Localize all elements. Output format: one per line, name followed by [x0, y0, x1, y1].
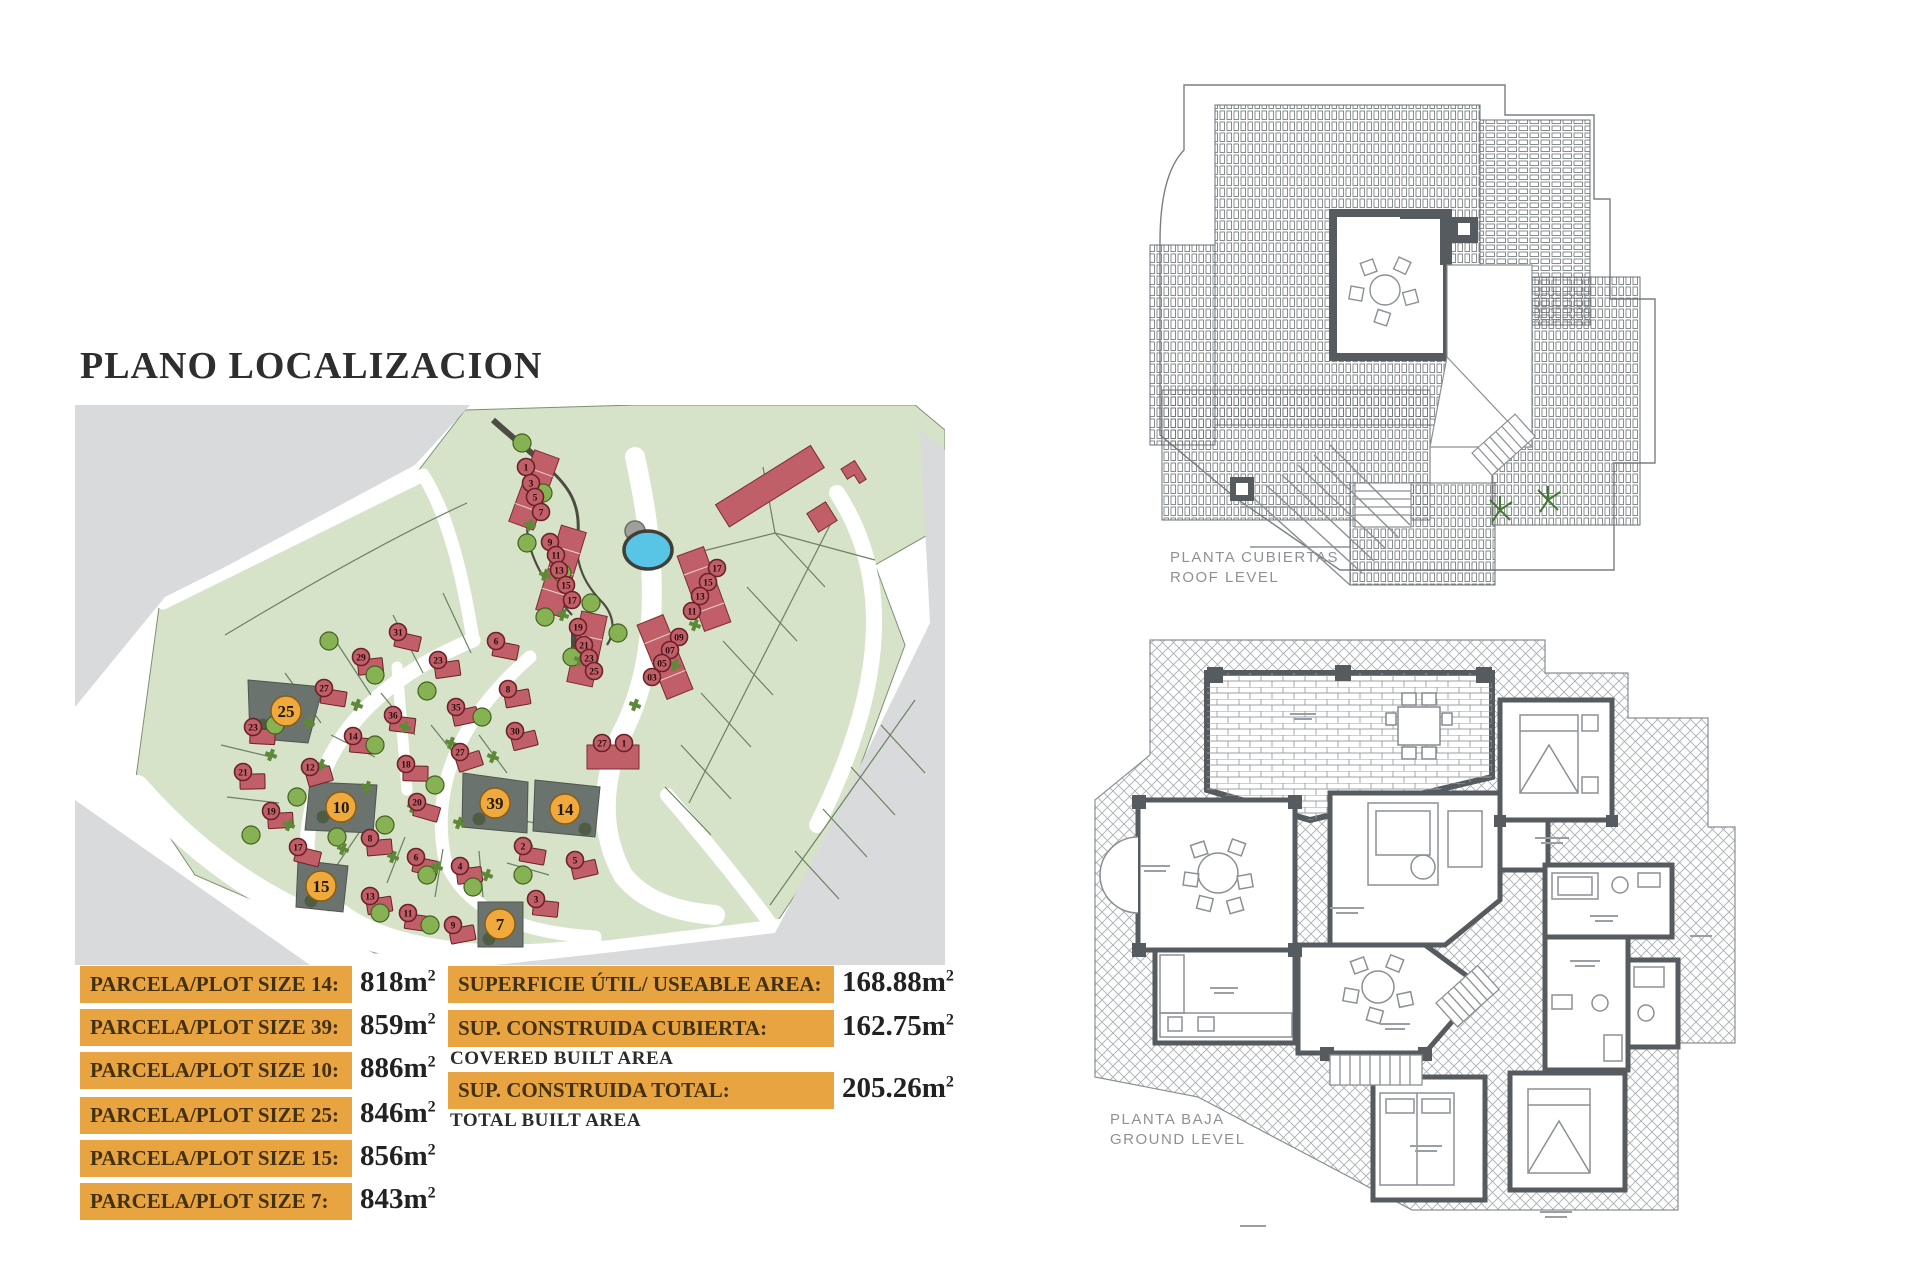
roof-plan-label: PLANTA CUBIERTASROOF LEVEL	[1170, 548, 1339, 588]
svg-text:36: 36	[388, 711, 398, 721]
svg-text:15: 15	[703, 578, 713, 588]
tree-icon	[320, 632, 338, 650]
area-row-sublabel: TOTAL BUILT AREA	[450, 1110, 641, 1132]
bathroom-2	[1545, 937, 1628, 1070]
tree-icon	[288, 788, 306, 806]
plot-row-bar: PARCELA/PLOT SIZE 14:	[80, 966, 352, 1003]
svg-text:13: 13	[365, 892, 375, 902]
plot-row-bar: PARCELA/PLOT SIZE 25:	[80, 1097, 352, 1134]
plot-number-marker: 21	[235, 764, 252, 781]
svg-text:1: 1	[622, 739, 627, 749]
plan-sheet: PLANO LOCALIZACION	[0, 0, 1920, 1280]
tree-icon	[473, 708, 491, 726]
tree-icon	[582, 594, 600, 612]
svg-text:25: 25	[278, 702, 295, 721]
ground-plan	[1080, 615, 1740, 1260]
svg-text:7: 7	[539, 508, 544, 518]
tree-icon	[366, 736, 384, 754]
svg-text:6: 6	[494, 637, 499, 647]
svg-text:27: 27	[319, 684, 329, 694]
plot-number-marker: 25	[586, 663, 603, 680]
plot-number-marker: 20	[409, 794, 426, 811]
bedroom-1	[1500, 700, 1612, 820]
svg-text:11: 11	[552, 551, 561, 561]
svg-text:03: 03	[647, 673, 657, 683]
plot-row-label: PARCELA/PLOT SIZE 7:	[90, 1189, 328, 1214]
svg-text:23: 23	[248, 723, 258, 733]
svg-text:13: 13	[554, 566, 564, 576]
area-row-label: SUP. CONSTRUIDA TOTAL:	[458, 1078, 730, 1103]
area-row-label: SUP. CONSTRUIDA CUBIERTA:	[458, 1016, 767, 1041]
svg-text:35: 35	[451, 703, 461, 713]
plot-row-label: PARCELA/PLOT SIZE 14:	[90, 972, 339, 997]
svg-text:14: 14	[557, 800, 575, 819]
svg-text:11: 11	[688, 607, 697, 617]
plot-number-marker: 27	[452, 744, 469, 761]
plot-row-value: 859m2	[360, 1009, 436, 1042]
plot-number-marker: 35	[448, 699, 465, 716]
svg-text:18: 18	[401, 760, 411, 770]
plot-row-value: 856m2	[360, 1140, 436, 1173]
plot-number-marker: 8	[500, 681, 517, 698]
dining-room	[1138, 800, 1295, 950]
svg-text:15: 15	[561, 581, 571, 591]
plot-number-marker: 6	[408, 849, 425, 866]
hallway	[1500, 820, 1548, 870]
svg-text:3: 3	[529, 479, 534, 489]
plot-number-marker: 12	[302, 759, 319, 776]
plot-number-marker: 1	[616, 735, 633, 752]
plot-row-value: 843m2	[360, 1183, 436, 1216]
highlighted-plot-marker: 15	[306, 871, 336, 901]
living-room	[1330, 793, 1500, 945]
plot-row-value: 886m2	[360, 1052, 436, 1085]
plot-number-marker: 11	[548, 547, 565, 564]
svg-text:4: 4	[458, 862, 463, 872]
svg-text:9: 9	[451, 921, 456, 931]
svg-text:17: 17	[567, 596, 577, 606]
plot-number-marker: 11	[400, 905, 417, 922]
svg-text:1: 1	[524, 463, 529, 473]
map-terrain: 1357911131517192123251715131109070503271…	[75, 405, 945, 965]
svg-text:23: 23	[433, 656, 443, 666]
svg-text:29: 29	[356, 653, 366, 663]
svg-text:39: 39	[487, 794, 504, 813]
svg-text:5: 5	[533, 493, 538, 503]
svg-text:30: 30	[510, 727, 520, 737]
area-row-value: 205.26m2	[842, 1072, 954, 1105]
plot-number-marker: 36	[385, 707, 402, 724]
svg-text:8: 8	[368, 834, 373, 844]
tree-icon	[242, 826, 260, 844]
plot-row-label: PARCELA/PLOT SIZE 39:	[90, 1015, 339, 1040]
tree-icon	[518, 534, 536, 552]
plot-row-bar: PARCELA/PLOT SIZE 10:	[80, 1052, 352, 1089]
plot-number-marker: 18	[398, 756, 415, 773]
plot-row-bar: PARCELA/PLOT SIZE 39:	[80, 1009, 352, 1046]
plot-number-marker: 29	[353, 649, 370, 666]
plot-number-marker: 19	[263, 803, 280, 820]
svg-text:6: 6	[414, 853, 419, 863]
area-row-label: SUPERFICIE ÚTIL/ USEABLE AREA:	[458, 972, 822, 997]
plot-number-marker: 03	[644, 669, 661, 686]
plot-number-marker: 2	[515, 838, 532, 855]
svg-text:07: 07	[665, 646, 675, 656]
site-location-map: 1357911131517192123251715131109070503271…	[75, 405, 945, 965]
plot-number-marker: 9	[445, 917, 462, 934]
plot-number-marker: 30	[507, 723, 524, 740]
area-row-value: 162.75m2	[842, 1010, 954, 1043]
tree-icon	[366, 666, 384, 684]
kitchen	[1155, 950, 1295, 1043]
svg-text:19: 19	[266, 807, 276, 817]
highlighted-plot-marker: 14	[550, 794, 580, 824]
tree-icon	[536, 608, 554, 626]
plot-row-bar: PARCELA/PLOT SIZE 7:	[80, 1183, 352, 1220]
plot-row-value: 846m2	[360, 1097, 436, 1130]
svg-text:11: 11	[404, 909, 413, 919]
page-title: PLANO LOCALIZACION	[80, 344, 542, 388]
svg-text:17: 17	[293, 843, 303, 853]
plot-number-marker: 7	[533, 504, 550, 521]
plot-row-value: 818m2	[360, 966, 436, 999]
utility-room	[1628, 960, 1678, 1047]
tree-icon	[421, 916, 439, 934]
ground-plan-label: PLANTA BAJAGROUND LEVEL	[1110, 1110, 1246, 1150]
area-row-bar: SUP. CONSTRUIDA CUBIERTA:	[448, 1010, 834, 1047]
plot-number-marker: 27	[316, 680, 333, 697]
tree-icon	[514, 866, 532, 884]
svg-text:19: 19	[573, 623, 583, 633]
highlighted-plot-marker: 7	[485, 909, 515, 939]
area-row-bar: SUPERFICIE ÚTIL/ USEABLE AREA:	[448, 966, 834, 1003]
bedroom-2	[1373, 1077, 1485, 1200]
svg-text:13: 13	[695, 592, 705, 602]
plot-number-marker: 13	[362, 888, 379, 905]
pond	[624, 531, 672, 569]
plot-number-marker: 17	[290, 839, 307, 856]
svg-text:14: 14	[348, 732, 358, 742]
highlighted-plot-marker: 39	[480, 788, 510, 818]
plot-number-marker: 8	[362, 830, 379, 847]
tree-icon	[418, 682, 436, 700]
plot-number-marker: 11	[684, 603, 701, 620]
plot-number-marker: 19	[570, 619, 587, 636]
svg-text:15: 15	[313, 877, 330, 896]
area-row-sublabel: COVERED BUILT AREA	[450, 1048, 673, 1070]
svg-text:12: 12	[305, 763, 315, 773]
tree-icon	[376, 816, 394, 834]
plot-number-marker: 27	[594, 735, 611, 752]
highlighted-plot-marker: 10	[326, 792, 356, 822]
tree-icon	[426, 776, 444, 794]
svg-text:3: 3	[534, 895, 539, 905]
tree-icon	[513, 434, 531, 452]
svg-text:05: 05	[657, 659, 667, 669]
plot-number-marker: 6	[488, 633, 505, 650]
svg-text:7: 7	[496, 915, 505, 934]
plot-number-marker: 23	[430, 652, 447, 669]
svg-text:27: 27	[455, 748, 465, 758]
svg-text:2: 2	[521, 842, 526, 852]
highlighted-plot-marker: 25	[271, 696, 301, 726]
plot-number-marker: 17	[564, 592, 581, 609]
svg-text:10: 10	[333, 798, 350, 817]
svg-text:27: 27	[597, 739, 607, 749]
svg-text:31: 31	[393, 628, 403, 638]
area-row-bar: SUP. CONSTRUIDA TOTAL:	[448, 1072, 834, 1109]
roof-chimney	[1230, 477, 1254, 501]
plot-row-label: PARCELA/PLOT SIZE 15:	[90, 1146, 339, 1171]
svg-text:17: 17	[712, 564, 722, 574]
plot-number-marker: 1	[518, 459, 535, 476]
tree-icon	[418, 866, 436, 884]
roof-plan	[1100, 55, 1700, 600]
tree-icon	[609, 624, 627, 642]
plot-row-label: PARCELA/PLOT SIZE 25:	[90, 1103, 339, 1128]
svg-text:21: 21	[238, 768, 248, 778]
svg-text:5: 5	[573, 856, 578, 866]
plot-number-marker: 4	[452, 858, 469, 875]
svg-text:09: 09	[674, 633, 684, 643]
plot-row-label: PARCELA/PLOT SIZE 10:	[90, 1058, 339, 1083]
svg-text:25: 25	[589, 667, 599, 677]
plot-row-bar: PARCELA/PLOT SIZE 15:	[80, 1140, 352, 1177]
plot-number-marker: 5	[567, 852, 584, 869]
tree-icon	[464, 878, 482, 896]
plot-number-marker: 31	[390, 624, 407, 641]
area-row-value: 168.88m2	[842, 966, 954, 999]
tree-icon	[371, 904, 389, 922]
svg-text:20: 20	[412, 798, 422, 808]
svg-text:8: 8	[506, 685, 511, 695]
plot-number-marker: 14	[345, 728, 362, 745]
plot-number-marker: 3	[528, 891, 545, 908]
plot-number-marker: 23	[245, 719, 262, 736]
bathroom-1	[1545, 865, 1672, 937]
